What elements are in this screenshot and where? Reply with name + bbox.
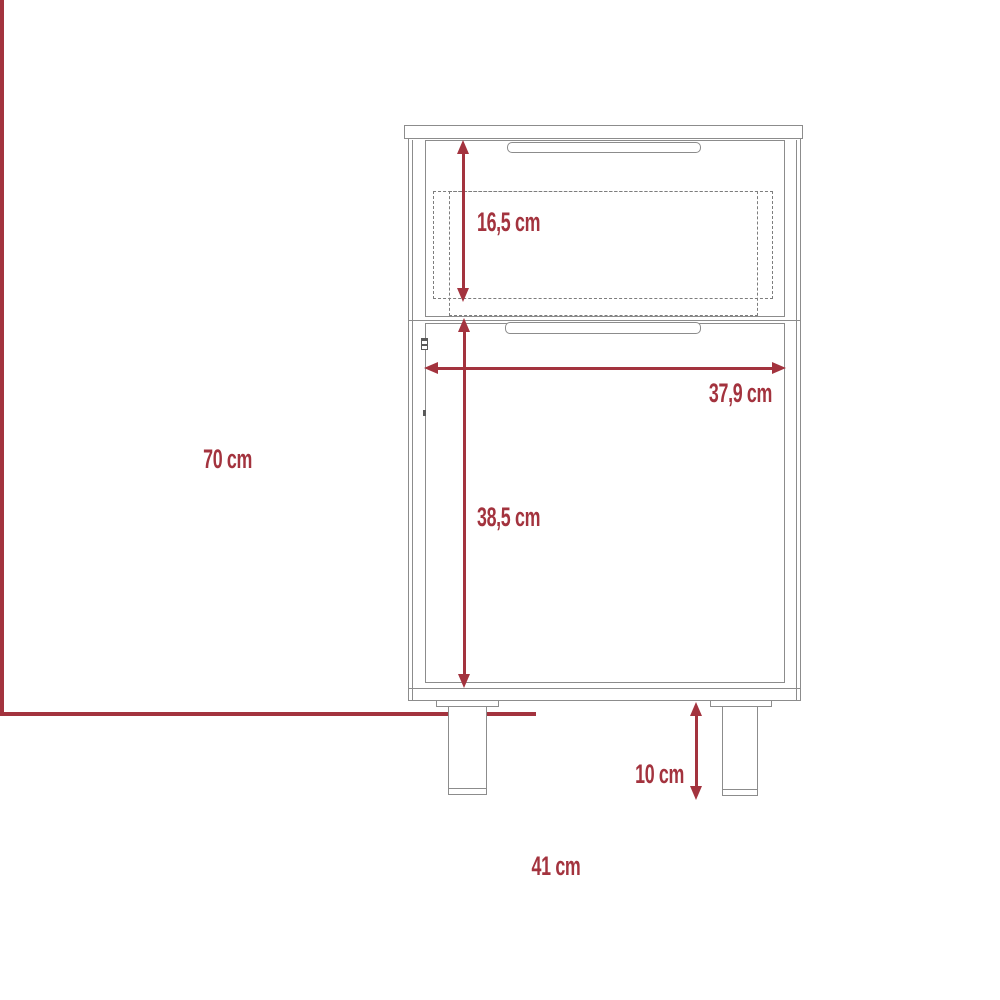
arrow-shaft: [435, 367, 775, 370]
left-leg: [448, 706, 487, 795]
leg-height-arrow: [689, 702, 703, 800]
arrow-shaft: [695, 713, 698, 789]
drawer-height-label: 16,5 cm: [477, 209, 540, 236]
cabinet-right-panel-inner-line: [796, 140, 797, 700]
cabinet-top-panel: [404, 125, 803, 139]
drawer-height-arrow: [456, 140, 470, 302]
cabinet-left-panel-inner-line: [412, 140, 413, 700]
dimension-drawing-canvas: 70 cm 41 cm 16,5 cm 37,9 cm 38,5 cm 10 c…: [0, 0, 1000, 1000]
drawer-handle: [507, 142, 701, 153]
left-leg-foot-line: [449, 788, 486, 789]
door-hinge: [421, 338, 428, 350]
interior-width-label: 37,9 cm: [640, 380, 772, 407]
cabinet-bottom-inner-line: [409, 688, 800, 689]
door-handle: [505, 322, 701, 334]
overall-height-label: 70 cm: [171, 446, 252, 473]
overall-width-label: 41 cm: [490, 853, 622, 880]
arrow-head-down-icon: [690, 786, 702, 800]
door-height-label: 38,5 cm: [477, 504, 540, 531]
overall-height-extension-line: [0, 0, 4, 712]
right-leg-foot-line: [723, 789, 757, 790]
arrow-head-right-icon: [772, 362, 786, 374]
right-leg: [722, 706, 758, 796]
interior-width-arrow: [424, 361, 786, 375]
door-hinge-tick: [423, 410, 426, 416]
arrow-shaft: [462, 151, 465, 291]
arrow-head-down-icon: [458, 674, 470, 688]
leg-height-label: 10 cm: [552, 761, 684, 788]
arrow-head-down-icon: [457, 288, 469, 302]
arrow-shaft: [463, 329, 466, 677]
